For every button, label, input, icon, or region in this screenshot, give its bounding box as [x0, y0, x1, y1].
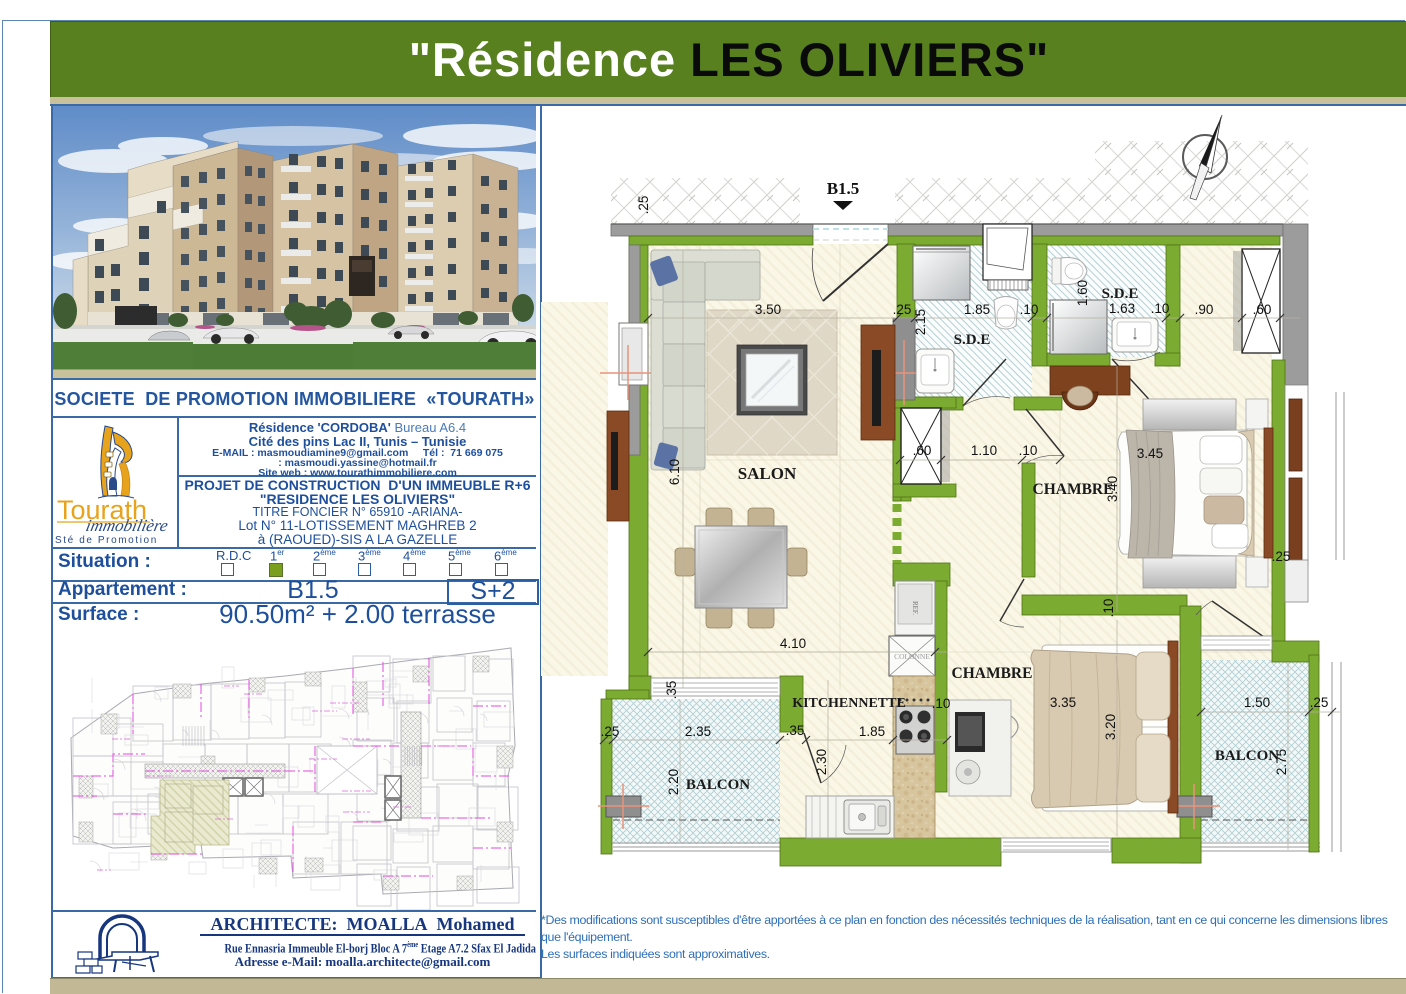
svg-text:.10: .10 [1019, 443, 1038, 458]
svg-text:Sté de Promotion: Sté de Promotion [55, 535, 158, 546]
svg-text:3.50: 3.50 [755, 302, 781, 317]
svg-text:BALCON: BALCON [1215, 748, 1279, 764]
svg-text:.25: .25 [636, 196, 651, 215]
svg-text:.35: .35 [664, 681, 679, 700]
svg-text:.60: .60 [913, 443, 932, 458]
svg-text:4.10: 4.10 [780, 636, 806, 651]
svg-text:2.75: 2.75 [1274, 749, 1289, 775]
svg-text:1.50: 1.50 [1244, 695, 1270, 710]
svg-text:2.30: 2.30 [814, 749, 829, 775]
svg-text:CHAMBRE: CHAMBRE [1033, 481, 1114, 498]
svg-text:1.63: 1.63 [1109, 301, 1135, 316]
svg-text:3.40: 3.40 [1105, 476, 1120, 502]
svg-text:SALON: SALON [738, 464, 797, 483]
svg-text:6.10: 6.10 [667, 459, 682, 485]
svg-text:1.10: 1.10 [971, 443, 997, 458]
svg-text:2.20: 2.20 [666, 769, 681, 795]
svg-text:.10: .10 [932, 696, 951, 711]
svg-text:.25: .25 [893, 302, 912, 317]
svg-text:2.15: 2.15 [913, 309, 928, 335]
svg-text:immobilière: immobilière [84, 516, 170, 535]
svg-text:3.45: 3.45 [1137, 446, 1163, 461]
svg-text:.90: .90 [1195, 302, 1214, 317]
svg-text:.25: .25 [1310, 695, 1329, 710]
svg-text:3.20: 3.20 [1103, 714, 1118, 740]
svg-text:BALCON: BALCON [686, 777, 750, 793]
svg-text:KITCHENNETTE: KITCHENNETTE [792, 696, 906, 711]
svg-text:.10: .10 [1151, 301, 1170, 316]
svg-text:1.60: 1.60 [1075, 280, 1090, 306]
svg-text:COLONNE: COLONNE [894, 652, 930, 661]
svg-text:.35: .35 [786, 723, 805, 738]
svg-text:.25: .25 [1272, 549, 1291, 564]
svg-text:S.D.E: S.D.E [954, 332, 991, 348]
svg-text:3.35: 3.35 [1050, 695, 1076, 710]
svg-text:.25: .25 [601, 724, 620, 739]
svg-text:CHAMBRE: CHAMBRE [952, 665, 1033, 682]
svg-text:1.85: 1.85 [964, 302, 990, 317]
svg-text:.10: .10 [1020, 302, 1039, 317]
svg-text:REF.: REF. [911, 601, 919, 615]
svg-text:S.D.E: S.D.E [1102, 286, 1139, 302]
svg-text:2.35: 2.35 [685, 724, 711, 739]
svg-text:1.85: 1.85 [859, 724, 885, 739]
svg-text:B1.5: B1.5 [827, 179, 860, 198]
svg-text:.60: .60 [1253, 302, 1272, 317]
svg-text:.10: .10 [1101, 599, 1116, 618]
